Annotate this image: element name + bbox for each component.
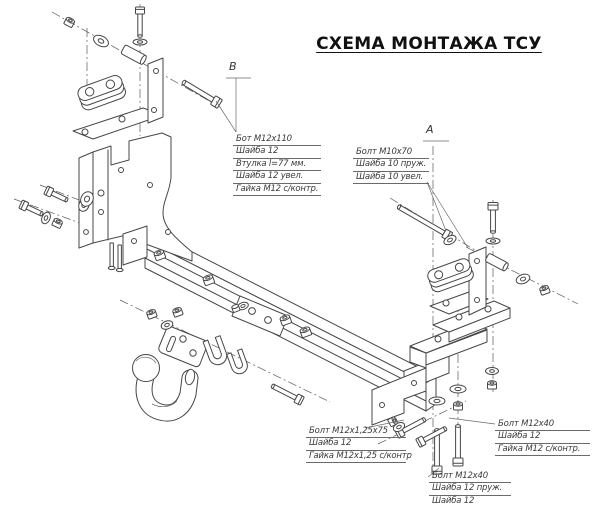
callout-line: Шайба 10 увел. (353, 172, 429, 184)
left-bracket (79, 133, 192, 272)
tow-ball-assembly (133, 327, 250, 413)
left-pad-stack (76, 74, 127, 112)
callout-line: Шайба 12 (495, 431, 590, 443)
right-pad-stack (426, 257, 475, 294)
callout-bolt-m12x40-bottom: Болт М12х40 Шайба 12 пруж. Шайба 12 (429, 471, 511, 506)
section-marker-b: В (229, 60, 237, 73)
callout-line: Гайка М12 с/контр. (233, 184, 321, 196)
callout-line: Болт М12х40 (495, 419, 590, 431)
section-marker-a: А (426, 123, 434, 136)
callout-bolt-m12x125x75: Болт М12х1,25х75 Шайба 12 Гайка М12х1,25… (306, 426, 406, 463)
callout-line: Шайба 12 (429, 496, 511, 506)
callout-line: Шайба 12 увел. (233, 171, 321, 183)
callout-line: Шайба 12 (306, 438, 406, 450)
callout-bolt-m12x40-right: Болт М12х40 Шайба 12 Гайка М12 с/контр. (495, 419, 590, 456)
callout-line: Шайба 12 пруж. (429, 483, 511, 495)
callout-line: Гайка М12х1,25 с/контр (306, 451, 406, 463)
callout-line: Шайба 12 (233, 146, 321, 158)
callout-line: Втулка l=77 мм. (233, 159, 321, 171)
mounting-scheme-page: СХЕМА МОНТАЖА ТСУ В А Бот M12х110 Шайба … (0, 0, 600, 506)
callout-line: Гайка М12 с/контр. (495, 444, 590, 456)
callout-line: Болт М12х40 (429, 471, 511, 483)
callout-bolt-m12x110: Бот M12х110 Шайба 12 Втулка l=77 мм. Шай… (233, 134, 321, 196)
callout-line: Шайба 10 пруж. (353, 159, 429, 171)
callout-line: Бот M12х110 (233, 134, 321, 146)
callout-line: Болт М10х70 (353, 147, 429, 159)
page-title: СХЕМА МОНТАЖА ТСУ (314, 34, 544, 54)
callout-bolt-m10x70: Болт М10х70 Шайба 10 пруж. Шайба 10 увел… (353, 147, 429, 184)
callout-line: Болт М12х1,25х75 (306, 426, 406, 438)
